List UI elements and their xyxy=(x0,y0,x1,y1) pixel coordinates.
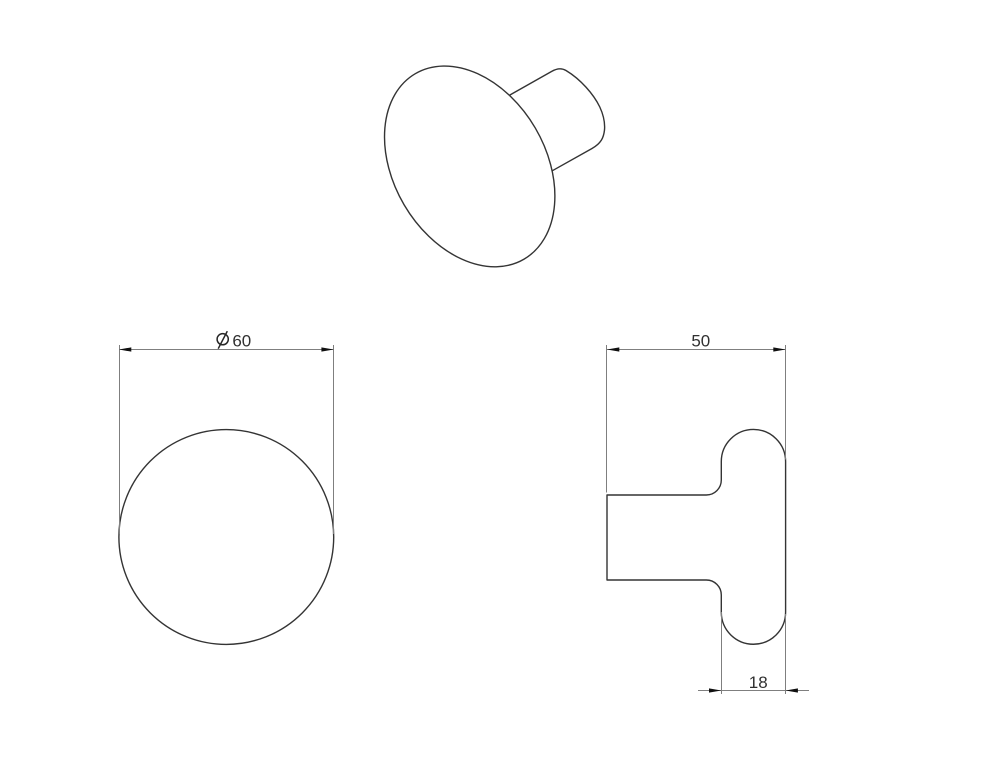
svg-text:60: 60 xyxy=(232,332,251,351)
svg-text:18: 18 xyxy=(749,673,768,692)
svg-text:50: 50 xyxy=(691,332,710,351)
